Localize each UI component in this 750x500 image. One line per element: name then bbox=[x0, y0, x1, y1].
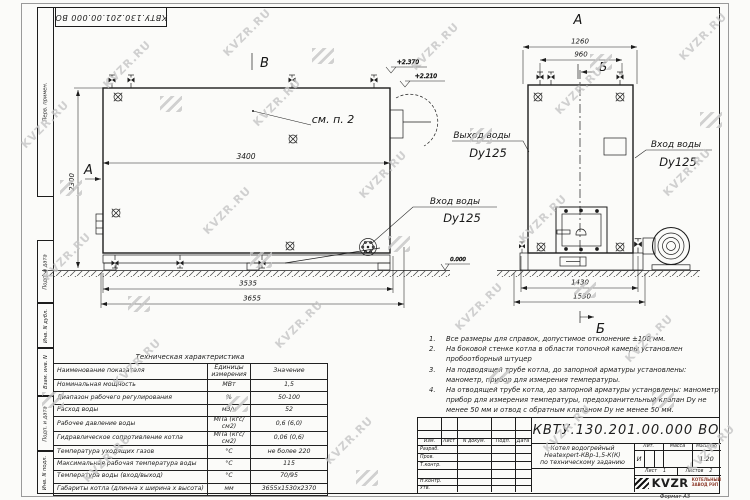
ground-hatch-front bbox=[497, 271, 700, 277]
tb-row-prov: Пров. bbox=[418, 453, 459, 461]
inspection-hatch bbox=[604, 138, 626, 155]
inlet-dn-label: Dy125 bbox=[443, 211, 481, 225]
dim-3655: 3655 bbox=[101, 247, 404, 308]
valve-icon bbox=[259, 255, 266, 268]
spec-value: 0,6 (6,0) bbox=[251, 417, 328, 432]
spec-value: не более 220 bbox=[251, 446, 328, 458]
document-number: КВТУ.130.201.00.000 ВО bbox=[531, 418, 721, 443]
tb-mass-header: Масса bbox=[663, 443, 692, 450]
side-outlet-detail bbox=[390, 94, 438, 146]
tb-lit-header: Лит. bbox=[634, 443, 663, 450]
spec-units: МПа (кгс/см2) bbox=[208, 431, 251, 446]
spec-table-title: Техническая характеристика bbox=[53, 353, 327, 361]
note-item: 3. На подводящей трубе котла, до запорно… bbox=[429, 365, 722, 385]
notes-block: 1. Все размеры для справок, допустимое о… bbox=[429, 334, 722, 416]
spec-value: 70/95 bbox=[251, 471, 328, 483]
blower-fan bbox=[643, 228, 690, 270]
valve-icon bbox=[177, 255, 184, 268]
tb-row-tkontr: Т.контр. bbox=[418, 461, 459, 469]
spec-table: Наименование показателя Единицы измерени… bbox=[53, 363, 328, 496]
dim-3655-label: 3655 bbox=[243, 295, 261, 303]
valve-icon bbox=[289, 75, 296, 88]
tb-sheets-num: 2 bbox=[709, 469, 712, 474]
dim-1430-label: 1430 bbox=[571, 279, 589, 287]
valve-icon bbox=[617, 72, 624, 85]
dim-1530-label: 1530 bbox=[573, 293, 591, 301]
note-text: На боковой стенке котла в области топочн… bbox=[446, 344, 722, 364]
valve-icon bbox=[109, 75, 116, 88]
inlet-dn-label: Dy125 bbox=[659, 155, 697, 169]
tb-col-podp: Подп. bbox=[491, 438, 515, 445]
spec-name: Расход воды bbox=[54, 404, 208, 416]
valve-icon bbox=[634, 239, 642, 253]
valve-icon bbox=[371, 75, 378, 88]
tb-sheets: Листов 2 bbox=[677, 467, 721, 475]
elevation-0000: 0.000 bbox=[441, 257, 470, 270]
boiler-base-front bbox=[520, 253, 643, 270]
note-ref-label: см. п. 2 bbox=[312, 113, 355, 126]
spec-units: мм bbox=[208, 483, 251, 495]
spec-value: 50-100 bbox=[251, 392, 328, 404]
note-ref: см. п. 2 bbox=[252, 110, 354, 126]
spec-row: Габариты котла (длинна х ширина х высота… bbox=[54, 483, 328, 495]
spec-units: °С bbox=[208, 458, 251, 470]
spec-header-row: Наименование показателя Единицы измерени… bbox=[54, 364, 328, 380]
format-label: Формат А3 bbox=[630, 494, 720, 500]
outlet-dn-label: Dy125 bbox=[469, 146, 507, 160]
note-text: На подводящей трубе котла, до запорной а… bbox=[446, 365, 722, 385]
product-description-line2: Heatexpert-КВр-1,5-К(К) bbox=[532, 452, 633, 459]
tb-col-list: Лист bbox=[441, 438, 457, 445]
spec-units: °С bbox=[208, 471, 251, 483]
lifting-eye-icon bbox=[114, 93, 122, 101]
outlet-label: Выход воды bbox=[453, 131, 510, 141]
dim-960-label: 960 bbox=[574, 51, 588, 59]
dim-1260-label: 1260 bbox=[571, 38, 589, 46]
inlet-label: Вход воды bbox=[430, 197, 480, 207]
valve-icon bbox=[548, 72, 555, 85]
spec-value: 115 bbox=[251, 458, 328, 470]
note-text: Все размеры для справок, допустимое откл… bbox=[446, 334, 722, 344]
elevation-0000-label: 0.000 bbox=[450, 257, 466, 263]
elevation-2210: +2.210 bbox=[400, 73, 445, 87]
valve-icon bbox=[128, 75, 135, 88]
boiler-base-side bbox=[103, 248, 390, 270]
spec-row: Температура уходящих газов°Сне более 220 bbox=[54, 446, 328, 458]
dim-2300-label: 2300 bbox=[68, 173, 76, 191]
note-text: На отводящей трубе котла, до запорной ар… bbox=[446, 385, 722, 416]
lifting-eye-icon bbox=[289, 135, 297, 143]
tb-row-nkontr: Н.контр. bbox=[418, 478, 459, 485]
spec-name: Гидравлическое сопротивление котла bbox=[54, 431, 208, 446]
elevation-2370: +2.370 bbox=[386, 59, 427, 73]
outlet-callout: Выход воды Dy125 bbox=[452, 131, 529, 160]
spec-units: МПа (кгс/см2) bbox=[208, 417, 251, 432]
tb-sheets-label: Листов bbox=[686, 469, 704, 474]
inlet-callout-front: Вход воды Dy125 bbox=[635, 140, 712, 169]
kvzr-logo-sub2: ЗАВОД РЭП bbox=[692, 483, 721, 488]
dim-2300: 2300 bbox=[68, 88, 103, 268]
section-b-top-label: Б bbox=[599, 60, 607, 74]
spec-value: 1,5 bbox=[251, 380, 328, 392]
spec-col-value: Значение bbox=[251, 364, 328, 380]
dim-3400: 3400 bbox=[103, 152, 390, 163]
title-block: Изм. Лист N докум. Подп. Дата Разраб. Пр… bbox=[417, 417, 720, 494]
note-item: 4. На отводящей трубе котла, до запорной… bbox=[429, 385, 722, 416]
tb-sheet: Лист 1 bbox=[634, 467, 677, 475]
spec-name: Диапазон рабочего регулирования bbox=[54, 392, 208, 404]
spec-name: Максимальная рабочая температура воды bbox=[54, 458, 208, 470]
lifting-eye-icon bbox=[112, 209, 120, 217]
spec-col-units: Единицы измерения bbox=[208, 364, 251, 380]
tb-row-utv: Утв. bbox=[418, 485, 459, 492]
note-number: 4. bbox=[429, 385, 446, 416]
spec-units: °С bbox=[208, 446, 251, 458]
tb-sheet-label: Лист bbox=[645, 469, 657, 474]
spec-name: Температура уходящих газов bbox=[54, 446, 208, 458]
view-label-v: В bbox=[260, 56, 269, 71]
spec-row: Температура воды (вход/выход)°С70/95 bbox=[54, 471, 328, 483]
spec-row: Рабочее давление водыМПа (кгс/см2)0,6 (6… bbox=[54, 417, 328, 432]
product-description-line3: по техническому заданию bbox=[532, 459, 633, 466]
dim-960: 960 bbox=[540, 51, 622, 79]
spec-units: м3/ч bbox=[208, 404, 251, 416]
kvzr-logo: KVZR КОТЕЛЬНЫЙ ЗАВОД РЭП bbox=[634, 475, 721, 491]
drawing-sheet: KVZR.RU KVZR.RU KVZR.RU KVZR.RU KVZR.RU … bbox=[0, 0, 750, 500]
dim-3535-label: 3535 bbox=[239, 280, 257, 288]
note-number: 1. bbox=[429, 334, 446, 344]
lifting-eye-icon bbox=[537, 243, 545, 251]
spec-col-name: Наименование показателя bbox=[54, 364, 208, 380]
tb-lit-value: И bbox=[634, 450, 644, 467]
tb-col-data: Дата bbox=[515, 438, 531, 445]
product-description: Котел водогрейный Heatexpert-КВр-1,5-К(К… bbox=[532, 445, 633, 467]
kvzr-logo-bars-icon bbox=[634, 478, 649, 489]
boiler-body-front bbox=[528, 85, 633, 253]
spec-row: Максимальная рабочая температура воды°С1… bbox=[54, 458, 328, 470]
spec-name: Номинальная мощность bbox=[54, 380, 208, 392]
side-view: 3400 2300 3535 3655 bbox=[42, 53, 497, 308]
valve-icon bbox=[519, 242, 525, 253]
tb-sheet-num: 1 bbox=[663, 469, 666, 474]
lifting-eye-icon bbox=[534, 93, 542, 101]
tb-row-razrab: Разраб. bbox=[418, 445, 459, 453]
dim-3400-label: 3400 bbox=[236, 152, 255, 161]
front-view: 1260 960 А Б Выход воды Dy125 bbox=[452, 13, 712, 337]
note-number: 2. bbox=[429, 344, 446, 364]
furnace-door bbox=[556, 207, 607, 253]
inlet-callout-side: Вход воды Dy125 bbox=[372, 197, 497, 243]
spec-value: 52 bbox=[251, 404, 328, 416]
lifting-eye-icon bbox=[286, 242, 294, 250]
elevation-2210-label: +2.210 bbox=[415, 73, 437, 80]
view-label-a-front: А bbox=[573, 13, 583, 28]
spec-row: Номинальная мощностьМВт1,5 bbox=[54, 380, 328, 392]
note-number: 3. bbox=[429, 365, 446, 385]
lifting-eye-icon bbox=[616, 93, 624, 101]
valve-icon bbox=[112, 255, 119, 268]
view-label-a-side: А bbox=[83, 163, 93, 178]
spec-row: Диапазон рабочего регулирования%50-100 bbox=[54, 392, 328, 404]
spec-units: % bbox=[208, 392, 251, 404]
elevation-2370-label: +2.370 bbox=[397, 59, 419, 66]
note-item: 2. На боковой стенке котла в области топ… bbox=[429, 344, 722, 364]
tb-col-ndoc: N докум. bbox=[457, 438, 491, 445]
side-bracket bbox=[96, 214, 103, 234]
spec-row: Гидравлическое сопротивление котлаМПа (к… bbox=[54, 431, 328, 446]
note-item: 1. Все размеры для справок, допустимое о… bbox=[429, 334, 722, 344]
tb-col-izm: Изм. bbox=[418, 438, 441, 445]
section-b-top: Б bbox=[578, 60, 607, 79]
spec-units: МВт bbox=[208, 380, 251, 392]
tb-scale-value: 1:20 bbox=[692, 450, 721, 467]
tb-scale-header: Масштаб bbox=[692, 443, 721, 450]
spec-name: Рабочее давление воды bbox=[54, 417, 208, 432]
inlet-label: Вход воды bbox=[651, 140, 701, 150]
kvzr-logo-text: KVZR bbox=[652, 476, 689, 490]
lifting-eye-icon bbox=[616, 243, 624, 251]
spec-name: Температура воды (вход/выход) bbox=[54, 471, 208, 483]
spec-name: Габариты котла (длинна х ширина х высота… bbox=[54, 483, 208, 495]
spec-value: 3655х1530х2370 bbox=[251, 483, 328, 495]
spec-row: Расход водым3/ч52 bbox=[54, 404, 328, 416]
spec-value: 0,06 (0,6) bbox=[251, 431, 328, 446]
